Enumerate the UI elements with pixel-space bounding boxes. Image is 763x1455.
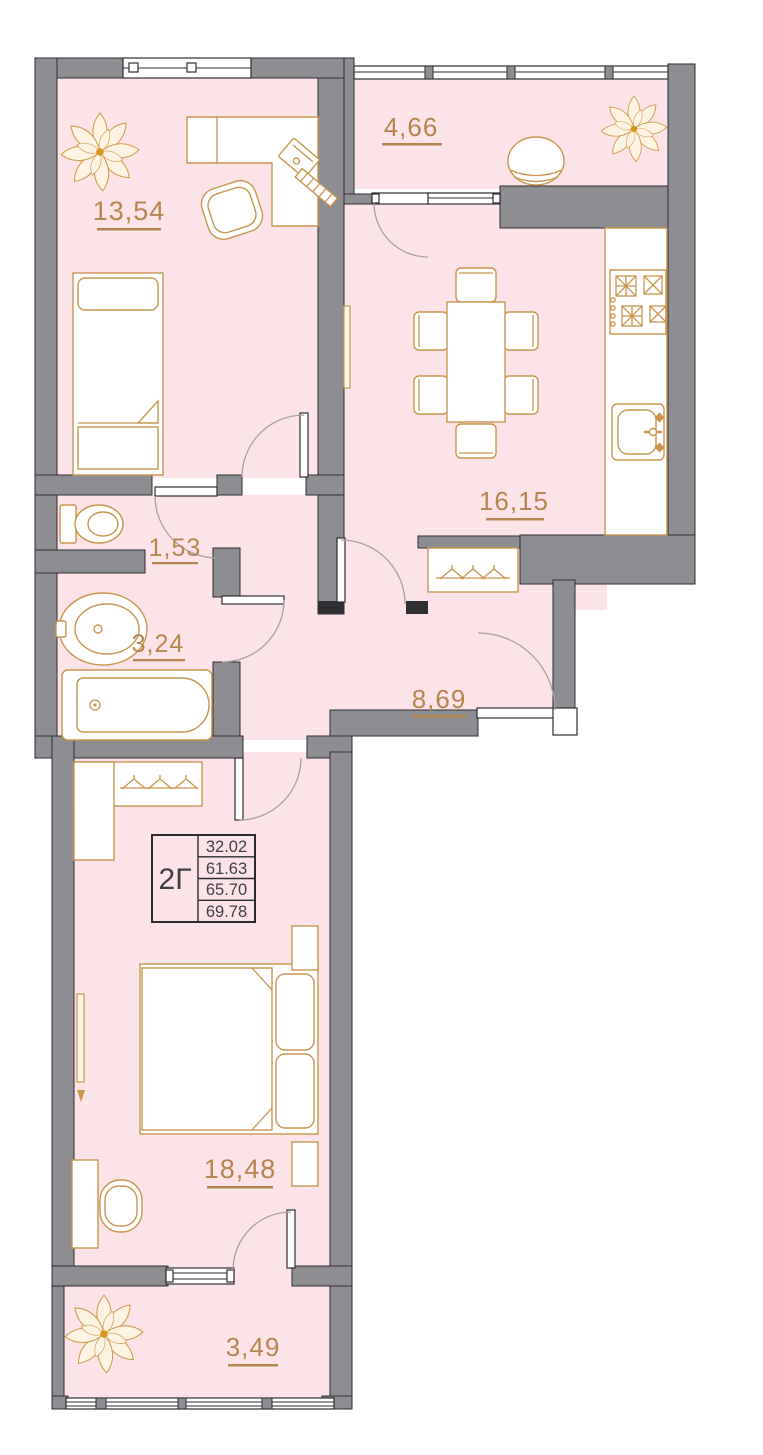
- toilet: [60, 505, 123, 543]
- area-value: 65.70: [206, 881, 247, 899]
- dining-chair: [414, 312, 448, 350]
- pouf: [508, 137, 564, 185]
- dining-chair: [456, 424, 496, 458]
- area-value: 69.78: [206, 903, 247, 921]
- double-bed: [140, 964, 318, 1134]
- dining-chair: [414, 376, 448, 414]
- window-balcony-top: [354, 66, 668, 79]
- room-label-wc: 1,53: [149, 534, 202, 562]
- unit-type-label: 2Г: [159, 863, 192, 896]
- radiator: [344, 306, 350, 388]
- wall-cap: [406, 601, 428, 614]
- floor-plan-svg: 13,54 4,66 16,15 1,53 3,24 8,69 18,48 3,…: [0, 0, 763, 1455]
- single-bed: [73, 273, 163, 475]
- window-bedroom-top: [123, 58, 251, 78]
- window-balcony-bottom: [66, 1398, 334, 1409]
- room-label-bedroom-bottom: 18,48: [204, 1154, 277, 1184]
- wall-cap: [318, 601, 344, 614]
- nightstand: [292, 926, 318, 970]
- pillow: [276, 974, 314, 1050]
- area-value: 32.02: [206, 838, 247, 856]
- entrance-opening: [477, 708, 577, 735]
- room-label-kitchen: 16,15: [479, 486, 549, 516]
- pillow: [276, 1054, 314, 1128]
- dining-chair: [504, 312, 538, 350]
- nightstand: [292, 1142, 318, 1186]
- floor-plan-page: 13,54 4,66 16,15 1,53 3,24 8,69 18,48 3,…: [0, 0, 763, 1455]
- dining-chair: [504, 376, 538, 414]
- dining-table: [447, 302, 505, 422]
- hall-wardrobe-hangers: [428, 548, 518, 592]
- room-label-bedroom-top: 13,54: [93, 196, 166, 226]
- desk: [72, 1160, 98, 1248]
- bathtub: [62, 670, 212, 740]
- room-label-bathroom: 3,24: [132, 630, 185, 658]
- window-bedroom-balcony: [166, 1268, 234, 1284]
- area-value: 61.63: [206, 860, 247, 878]
- desk-chair: [100, 1180, 142, 1232]
- dining-chair: [456, 268, 496, 302]
- window-balcony-kitchen: [372, 193, 500, 204]
- stove: [610, 270, 666, 334]
- room-label-balcony-top: 4,66: [384, 112, 439, 142]
- kitchen-sink: [612, 404, 664, 460]
- room-label-balcony-bottom: 3,49: [226, 1332, 281, 1362]
- room-label-hallway: 8,69: [412, 684, 467, 714]
